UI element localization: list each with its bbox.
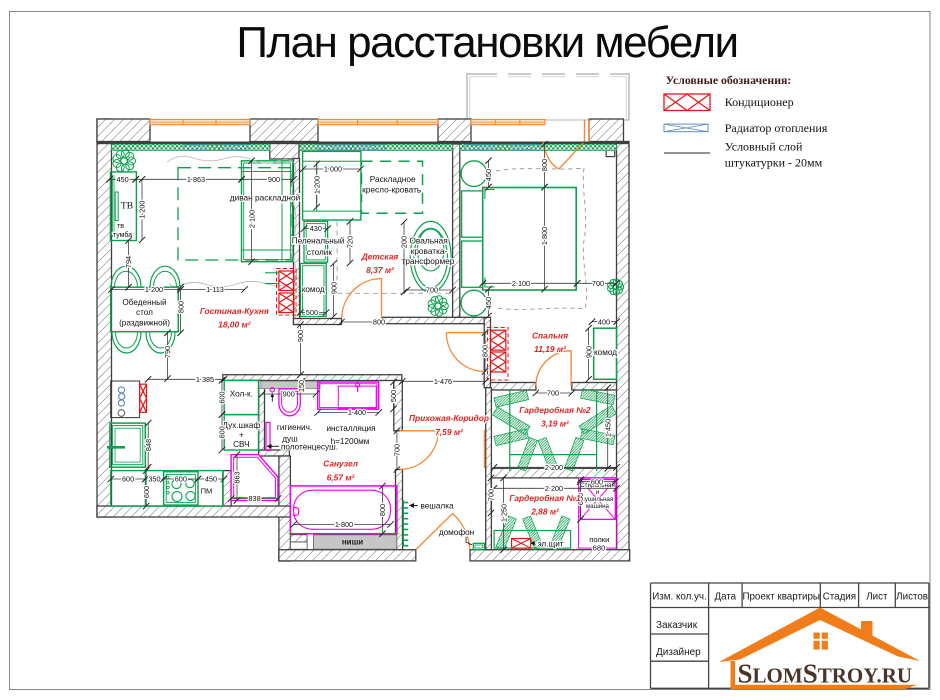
svg-text:800: 800 — [373, 318, 385, 327]
svg-text:863: 863 — [233, 471, 242, 483]
svg-text:Листов: Листов — [896, 592, 928, 603]
svg-text:6,57 м²: 6,57 м² — [327, 473, 355, 483]
svg-text:800: 800 — [481, 345, 490, 357]
svg-text:600: 600 — [122, 475, 134, 484]
svg-text:Гардеробная №1: Гардеробная №1 — [509, 493, 581, 503]
svg-text:350: 350 — [148, 475, 160, 484]
svg-text:1 200: 1 200 — [312, 176, 321, 194]
svg-text:11,19 м²: 11,19 м² — [534, 344, 566, 354]
svg-text:700: 700 — [592, 279, 604, 288]
svg-text:SLOMSTROY.RU: SLOMSTROY.RU — [738, 659, 913, 689]
svg-text:1 385: 1 385 — [196, 375, 214, 384]
svg-text:600: 600 — [218, 426, 227, 438]
svg-text:150: 150 — [297, 380, 306, 392]
svg-text:Хол-к.: Хол-к. — [230, 390, 253, 399]
svg-text:700: 700 — [426, 286, 438, 295]
svg-text:1 800: 1 800 — [540, 227, 549, 245]
svg-text:200: 200 — [400, 236, 409, 248]
svg-text:1 200: 1 200 — [145, 285, 163, 294]
svg-text:Спальня: Спальня — [532, 331, 568, 341]
svg-text:Гардеробная №2: Гардеробная №2 — [519, 405, 591, 415]
svg-text:Дизайнер: Дизайнер — [656, 647, 701, 658]
svg-text:3,19 м²: 3,19 м² — [541, 419, 569, 429]
svg-text:1 450: 1 450 — [603, 419, 612, 437]
svg-text:Дата: Дата — [714, 592, 736, 603]
svg-text:600: 600 — [591, 477, 603, 486]
svg-text:8,37 м²: 8,37 м² — [366, 265, 394, 275]
svg-text:ПМ: ПМ — [201, 487, 213, 496]
svg-text:900: 900 — [584, 346, 593, 358]
svg-text:2 200: 2 200 — [545, 484, 563, 493]
svg-text:1 113: 1 113 — [206, 285, 224, 294]
svg-text:1 000: 1 000 — [324, 165, 342, 174]
svg-text:ниши: ниши — [342, 538, 363, 547]
svg-text:комод: комод — [594, 348, 617, 357]
svg-text:Дух.шкаф: Дух.шкаф — [222, 421, 260, 430]
svg-text:680: 680 — [593, 544, 606, 553]
svg-text:Лист: Лист — [866, 592, 888, 603]
svg-text:(раздвижной): (раздвижной) — [119, 319, 170, 328]
svg-text:450: 450 — [117, 175, 129, 184]
svg-text:Овальная: Овальная — [409, 236, 447, 246]
svg-text:1 476: 1 476 — [434, 377, 452, 386]
svg-text:Пеленальный: Пеленальный — [292, 237, 345, 246]
svg-text:900: 900 — [268, 175, 280, 184]
svg-text:кресло-кровать: кресло-кровать — [362, 185, 421, 195]
svg-text:700: 700 — [547, 389, 559, 398]
svg-text:сушильная: сушильная — [582, 496, 614, 503]
svg-text:500: 500 — [389, 390, 398, 402]
svg-text:2 200: 2 200 — [545, 463, 563, 472]
svg-text:Детская: Детская — [361, 252, 399, 262]
svg-text:600: 600 — [175, 475, 187, 484]
svg-text:эл.щит: эл.щит — [537, 540, 563, 549]
svg-text:тумба: тумба — [113, 231, 132, 239]
svg-text:848: 848 — [144, 439, 153, 451]
svg-text:Проект квартиры: Проект квартиры — [742, 592, 820, 603]
svg-text:1 863: 1 863 — [187, 175, 205, 184]
svg-text:Санузел: Санузел — [323, 459, 359, 469]
svg-text:Гостиная-Кухня: Гостиная-Кухня — [200, 306, 269, 316]
svg-text:1 200: 1 200 — [138, 201, 147, 219]
svg-text:430: 430 — [310, 224, 322, 233]
svg-text:тв: тв — [117, 223, 124, 230]
svg-text:Кондиционер: Кондиционер — [725, 95, 794, 109]
svg-text:+: + — [239, 431, 244, 440]
svg-text:гигиенич.: гигиенич. — [277, 423, 312, 432]
svg-text:800: 800 — [378, 504, 387, 516]
svg-text:800: 800 — [176, 301, 185, 313]
svg-text:2 100: 2 100 — [247, 210, 256, 228]
svg-text:600: 600 — [218, 391, 227, 403]
svg-text:900: 900 — [329, 282, 338, 294]
svg-text:трансформер: трансформер — [402, 256, 455, 266]
svg-text:домофон: домофон — [439, 528, 474, 537]
svg-text:450: 450 — [484, 297, 493, 309]
svg-text:ТВ: ТВ — [121, 202, 133, 212]
svg-text:700: 700 — [487, 489, 496, 501]
svg-text:600: 600 — [142, 486, 151, 498]
svg-text:и: и — [596, 489, 600, 496]
svg-text:полотенцесуш.: полотенцесуш. — [281, 443, 338, 452]
svg-text:Стадия: Стадия — [823, 592, 856, 603]
svg-text:2,88 м²: 2,88 м² — [530, 507, 559, 517]
svg-text:18,00 м²: 18,00 м² — [218, 320, 250, 330]
svg-text:СВЧ: СВЧ — [233, 440, 249, 449]
svg-text:столик: столик — [307, 248, 332, 257]
svg-text:кроватка-: кроватка- — [411, 246, 448, 256]
svg-text:400: 400 — [598, 317, 610, 326]
svg-text:900: 900 — [296, 330, 305, 342]
svg-text:Раскладное: Раскладное — [370, 174, 416, 184]
svg-text:1 400: 1 400 — [348, 408, 366, 417]
svg-text:Радиатор отопления: Радиатор отопления — [725, 121, 828, 135]
svg-text:Заказчик: Заказчик — [656, 620, 698, 631]
svg-text:500: 500 — [306, 308, 318, 317]
svg-text:штукатурки - 20мм: штукатурки - 20мм — [725, 156, 823, 170]
svg-text:Изм. кол.уч.: Изм. кол.уч. — [652, 592, 707, 603]
svg-text:720: 720 — [346, 236, 355, 248]
svg-text:900: 900 — [283, 390, 295, 399]
svg-text:800: 800 — [540, 159, 549, 171]
svg-text:450: 450 — [484, 169, 493, 181]
svg-text:700: 700 — [393, 444, 402, 456]
svg-text:вешалка: вешалка — [420, 502, 453, 511]
svg-text:комод: комод — [302, 285, 325, 294]
svg-text:диван раскладной: диван раскладной — [230, 193, 301, 203]
svg-text:Обеденный: Обеденный — [122, 298, 166, 307]
svg-text:Условный слой: Условный слой — [725, 140, 803, 154]
svg-text:стол: стол — [136, 308, 153, 317]
svg-text:Условные обозначения:: Условные обозначения: — [666, 73, 792, 87]
svg-text:инсталляция: инсталляция — [326, 424, 375, 433]
svg-text:План расстановки мебели: План расстановки мебели — [236, 18, 737, 67]
svg-text:7,59 м²: 7,59 м² — [435, 427, 463, 437]
svg-text:1 800: 1 800 — [335, 520, 353, 529]
svg-text:794: 794 — [124, 256, 133, 268]
svg-text:450: 450 — [205, 475, 217, 484]
svg-text:2 100: 2 100 — [512, 279, 530, 288]
svg-text:машина: машина — [586, 503, 610, 510]
svg-text:1 250: 1 250 — [499, 504, 508, 522]
svg-text:Прихожая-Коридор: Прихожая-Коридор — [409, 413, 489, 423]
svg-text:790: 790 — [163, 346, 172, 358]
svg-text:838: 838 — [248, 494, 260, 503]
